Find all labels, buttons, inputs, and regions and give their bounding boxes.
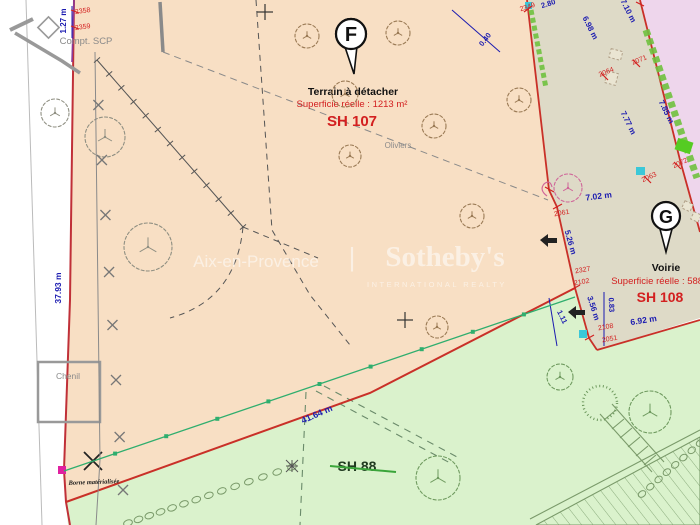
measure-point xyxy=(420,347,424,351)
parcel-sh108-area-label: Superficie réelle : 588 m² xyxy=(611,276,700,287)
measure-point xyxy=(266,399,270,403)
parcel-sh108-name: Voirie xyxy=(652,262,681,274)
marker-g-letter: G xyxy=(659,207,673,227)
dim-1-27-m: 1.27 m xyxy=(59,9,68,34)
measure-point xyxy=(369,365,373,369)
label-chenil: Chenil xyxy=(56,371,80,381)
parcel-sh88-id: SH 88 xyxy=(338,458,377,474)
label-oliviers: Oliviers xyxy=(385,141,412,150)
measure-point xyxy=(164,434,168,438)
tree-icon xyxy=(55,113,60,116)
site-plan: Aix-en-Provence | Sotheby's INTERNATIONA… xyxy=(0,0,700,525)
dim-37-93-m: 37.93 m xyxy=(53,272,63,304)
marker-f-letter: F xyxy=(345,24,357,46)
parcel-sh107-name: Terrain à détacher xyxy=(308,86,398,98)
measure-point xyxy=(215,417,219,421)
parcel-sh108-id: SH 108 xyxy=(637,289,684,305)
parcel-sh107-id: SH 107 xyxy=(327,113,377,130)
label-compt-scp: Compt. SCP xyxy=(60,36,113,47)
dim-0-83: 0.83 xyxy=(607,297,617,312)
measure-point xyxy=(471,330,475,334)
tree-icon xyxy=(50,113,55,116)
watermark-separator: | xyxy=(349,242,356,272)
measure-point xyxy=(318,382,322,386)
measure-point xyxy=(522,312,526,316)
measure-point xyxy=(113,452,117,456)
watermark-brand: Sotheby's xyxy=(385,241,504,273)
cadastral-plan-view: Aix-en-Provence | Sotheby's INTERNATIONA… xyxy=(0,0,700,525)
watermark-city: Aix-en-Provence xyxy=(193,252,319,271)
watermark-subbrand: INTERNATIONAL REALTY xyxy=(367,280,507,289)
